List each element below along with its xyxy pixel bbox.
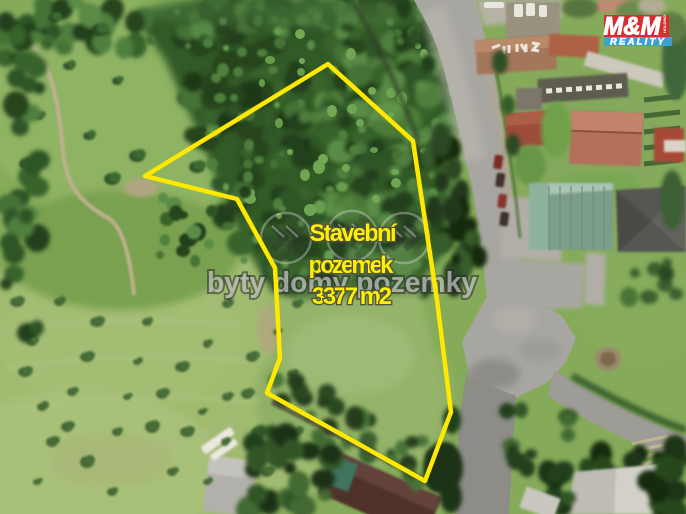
svg-text:3377 m2: 3377 m2 [312,283,392,310]
svg-text:REALITY: REALITY [610,37,666,48]
svg-text:HOLDING: HOLDING [662,15,667,33]
svg-text:pozemek: pozemek [309,252,395,279]
svg-text:Stavební: Stavební [310,220,398,247]
